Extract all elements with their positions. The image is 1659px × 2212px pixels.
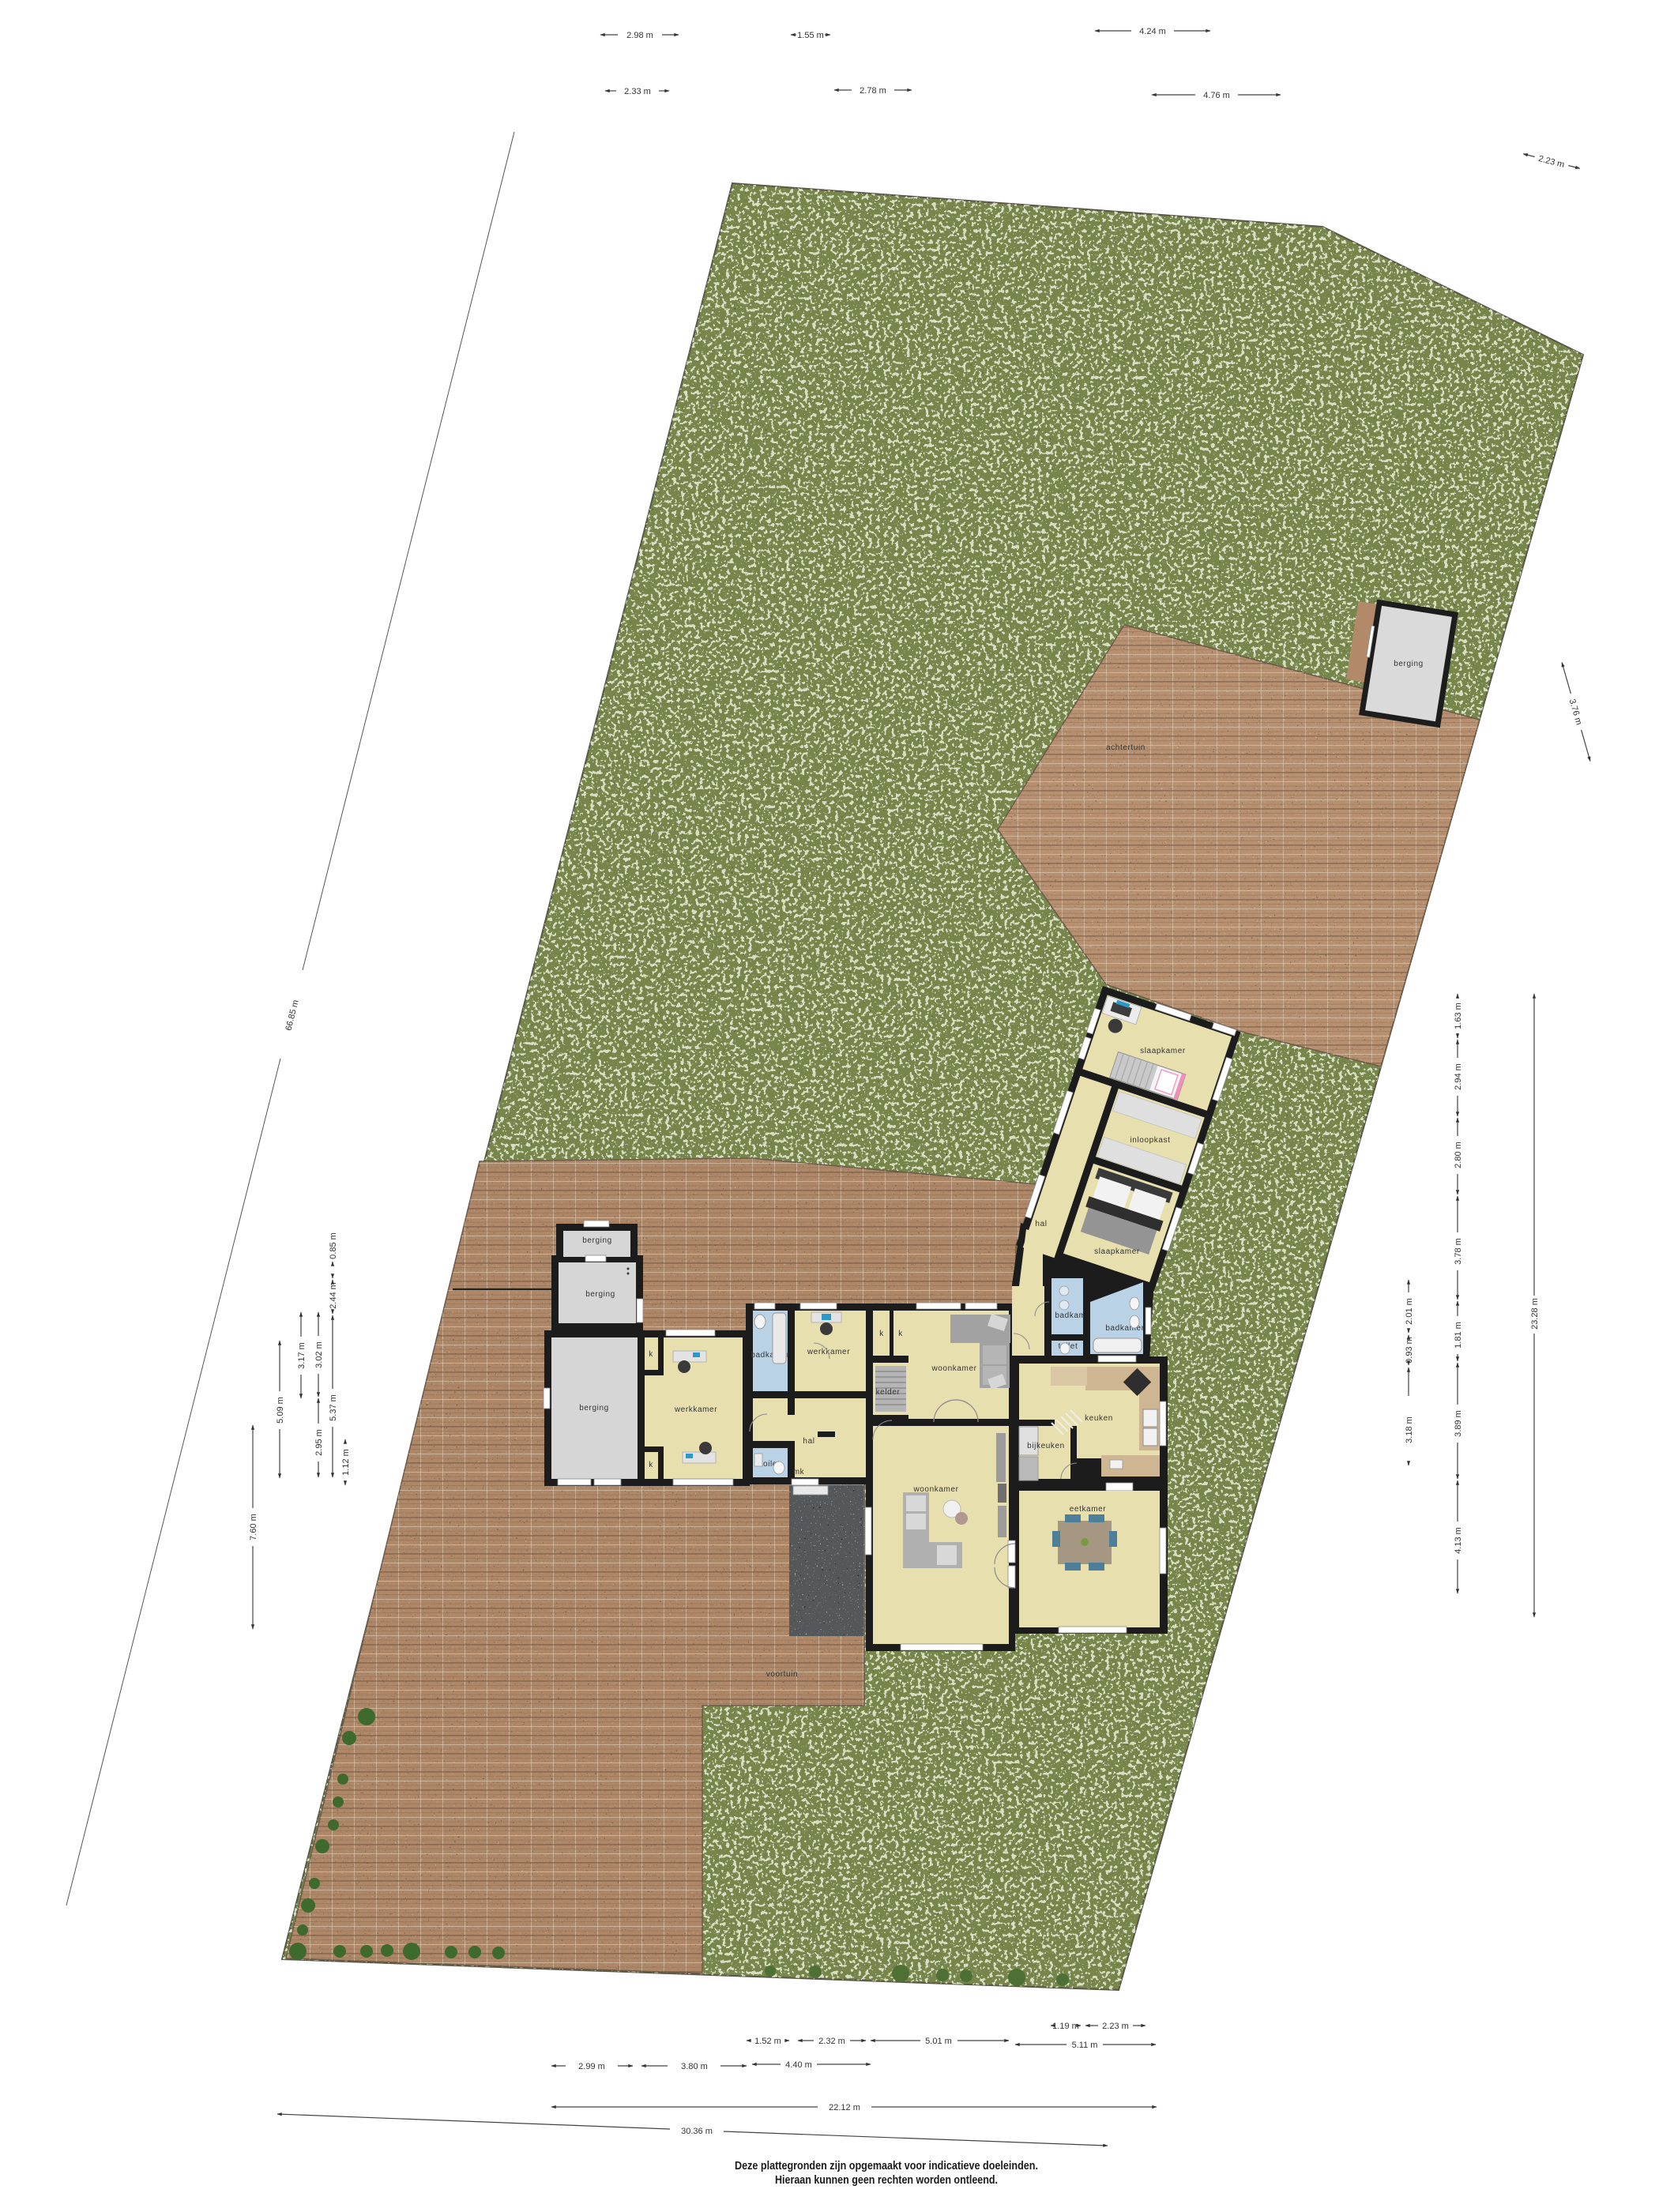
svg-text:4.76 m: 4.76 m	[1203, 91, 1230, 100]
svg-text:5.11 m: 5.11 m	[1072, 2041, 1098, 2050]
svg-text:slaapkamer: slaapkamer	[1094, 1247, 1140, 1256]
svg-text:1.19 m: 1.19 m	[1052, 2022, 1079, 2031]
svg-text:k: k	[649, 1461, 653, 1469]
svg-text:0.85 m: 0.85 m	[329, 1232, 338, 1259]
svg-text:3.17 m: 3.17 m	[297, 1342, 307, 1369]
svg-text:2.80 m: 2.80 m	[1454, 1142, 1463, 1168]
svg-text:Deze plattegronden zijn opgema: Deze plattegronden zijn opgemaakt voor i…	[735, 2159, 1038, 2172]
svg-text:achtertuin: achtertuin	[1106, 743, 1145, 752]
svg-text:k: k	[649, 1350, 653, 1359]
svg-text:2.32 m: 2.32 m	[818, 2037, 845, 2046]
svg-text:1.63 m: 1.63 m	[1454, 1003, 1463, 1029]
svg-text:eetkamer: eetkamer	[1070, 1505, 1107, 1514]
svg-text:3.78 m: 3.78 m	[1454, 1238, 1463, 1265]
svg-text:inloopkast: inloopkast	[1130, 1136, 1170, 1145]
svg-text:3.89 m: 3.89 m	[1454, 1410, 1463, 1437]
svg-text:22.12 m: 22.12 m	[829, 2103, 860, 2112]
svg-text:1.52 m: 1.52 m	[754, 2037, 781, 2046]
svg-text:bijkeuken: bijkeuken	[1027, 1442, 1065, 1450]
svg-text:2.98 m: 2.98 m	[626, 31, 653, 40]
svg-text:berging: berging	[585, 1290, 615, 1299]
svg-text:hal: hal	[1035, 1220, 1047, 1228]
svg-text:3.18 m: 3.18 m	[1405, 1416, 1414, 1443]
svg-text:5.09 m: 5.09 m	[276, 1397, 285, 1424]
svg-text:slaapkamer: slaapkamer	[1140, 1047, 1186, 1055]
svg-text:k: k	[898, 1330, 903, 1338]
svg-text:2.23 m: 2.23 m	[1102, 2022, 1129, 2031]
svg-text:voortuin: voortuin	[766, 1670, 798, 1679]
svg-text:keuken: keuken	[1085, 1414, 1113, 1423]
svg-text:23.28 m: 23.28 m	[1530, 1298, 1540, 1330]
svg-text:mk: mk	[793, 1468, 805, 1477]
svg-text:k: k	[879, 1330, 884, 1338]
svg-text:kelder: kelder	[876, 1388, 901, 1397]
svg-text:berging: berging	[1394, 660, 1424, 668]
svg-text:berging: berging	[582, 1236, 612, 1245]
svg-text:2.78 m: 2.78 m	[860, 86, 886, 96]
svg-text:2.95 m: 2.95 m	[314, 1429, 324, 1456]
svg-text:3.80 m: 3.80 m	[681, 2062, 708, 2071]
svg-text:woonkamer: woonkamer	[931, 1364, 976, 1373]
svg-text:30.36 m: 30.36 m	[681, 2127, 713, 2136]
svg-text:2.44 m: 2.44 m	[329, 1282, 338, 1309]
svg-text:Hieraan kunnen geen rechten wo: Hieraan kunnen geen rechten worden ontle…	[775, 2173, 998, 2187]
svg-text:0.93 m: 0.93 m	[1405, 1337, 1414, 1364]
svg-text:1.55 m: 1.55 m	[797, 31, 824, 40]
svg-text:2.01 m: 2.01 m	[1405, 1298, 1414, 1325]
svg-text:3.02 m: 3.02 m	[314, 1341, 324, 1368]
svg-text:1.81 m: 1.81 m	[1454, 1322, 1463, 1349]
svg-text:4.13 m: 4.13 m	[1454, 1527, 1463, 1554]
svg-text:2.99 m: 2.99 m	[578, 2062, 605, 2071]
svg-text:werkkamer: werkkamer	[674, 1405, 717, 1414]
svg-text:berging: berging	[579, 1404, 609, 1413]
svg-text:2.94 m: 2.94 m	[1454, 1063, 1463, 1090]
svg-text:hal: hal	[803, 1437, 814, 1446]
svg-text:4.24 m: 4.24 m	[1139, 27, 1166, 36]
svg-text:7.60 m: 7.60 m	[249, 1514, 258, 1540]
svg-text:5.01 m: 5.01 m	[925, 2037, 952, 2046]
svg-text:4.40 m: 4.40 m	[785, 2060, 812, 2070]
svg-text:1.12 m: 1.12 m	[341, 1449, 351, 1476]
svg-text:5.37 m: 5.37 m	[329, 1394, 338, 1421]
svg-text:2.33 m: 2.33 m	[624, 87, 651, 96]
